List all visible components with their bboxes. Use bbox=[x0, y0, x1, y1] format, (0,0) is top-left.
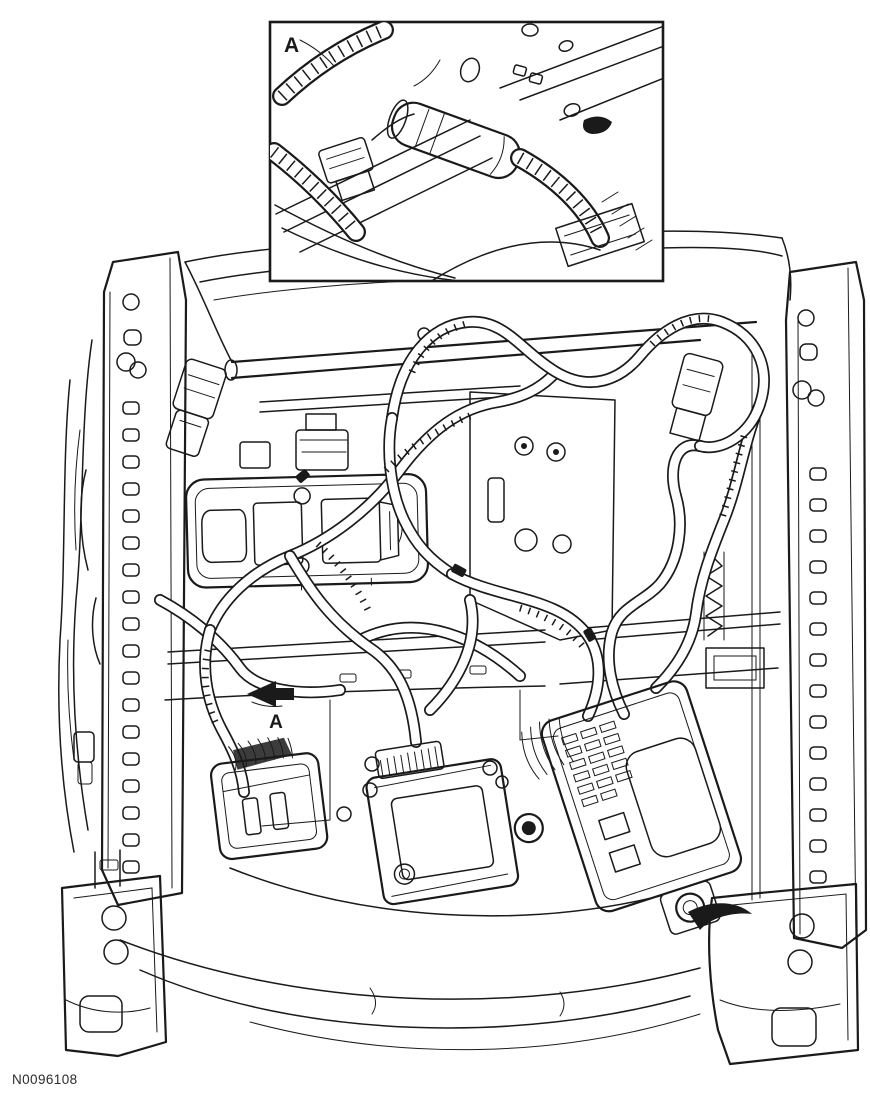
detail-callout: A bbox=[247, 681, 294, 733]
left-foot-bracket bbox=[62, 850, 166, 1056]
seat-module bbox=[361, 727, 551, 905]
seat-control-module bbox=[517, 676, 757, 962]
harness-connector bbox=[207, 732, 328, 860]
left-side-trim bbox=[59, 340, 100, 852]
right-seat-track bbox=[786, 262, 866, 948]
inset-label: A bbox=[284, 34, 299, 57]
inset-detail-box: A bbox=[270, 22, 664, 282]
left-seat-track bbox=[102, 252, 186, 905]
relay-connector bbox=[240, 414, 348, 470]
seat-wiring-illustration: A bbox=[0, 0, 870, 1096]
figure-reference-number: N0096108 bbox=[12, 1072, 78, 1087]
service-manual-figure: A bbox=[0, 0, 870, 1096]
detail-arrow-label: A bbox=[269, 712, 283, 733]
